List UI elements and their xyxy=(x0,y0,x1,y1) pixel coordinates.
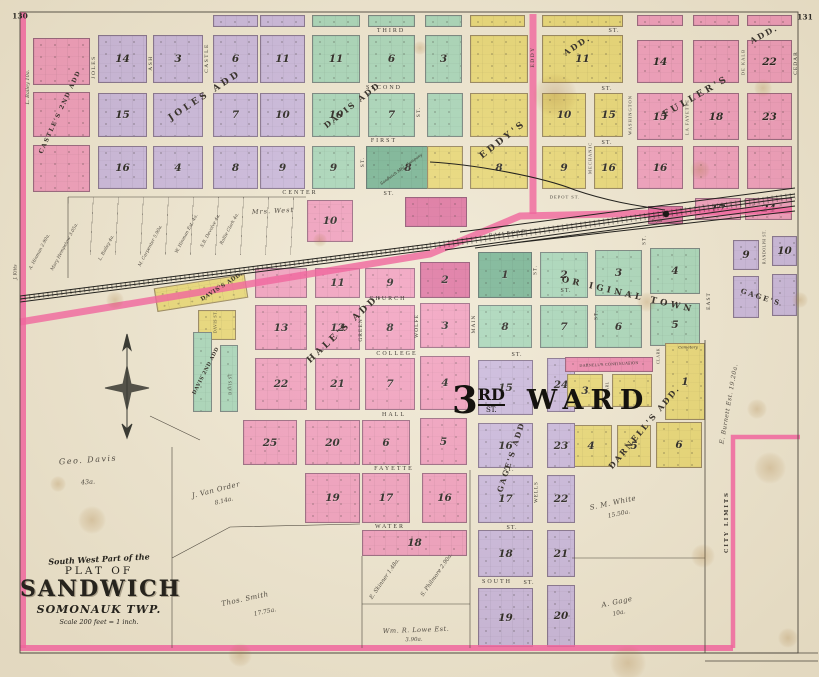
city-block: 6 xyxy=(362,420,410,465)
block-number: 11 xyxy=(261,36,304,82)
block-number: 19 xyxy=(479,589,532,646)
block-number: 19 xyxy=(306,474,359,522)
city-block: 10 xyxy=(772,236,797,266)
paper-stain xyxy=(106,291,124,309)
township-name: SOMONAUK TWP. xyxy=(20,603,178,616)
city-block: 10 xyxy=(307,200,353,242)
ward-number: 3 xyxy=(452,381,478,419)
block-number: 17 xyxy=(363,474,409,522)
city-block: 11 xyxy=(312,35,360,83)
block-number: 10 xyxy=(261,94,304,136)
city-block: 16 xyxy=(637,146,683,189)
block-number: 25 xyxy=(244,421,296,464)
block-number: 3 xyxy=(154,36,202,82)
city-block: 6 xyxy=(368,35,415,83)
block-number: 16 xyxy=(423,474,466,522)
city-block: 11 xyxy=(260,35,305,83)
block-number: 24 xyxy=(746,199,791,219)
city-block xyxy=(693,146,739,189)
block-number: 6 xyxy=(596,306,641,347)
block-number: 8 xyxy=(366,306,414,349)
property-owner-label: 3.90a. xyxy=(405,637,422,644)
city-block: 14 xyxy=(637,40,683,83)
paper-stain xyxy=(754,452,786,484)
city-block: 7 xyxy=(213,93,258,137)
street-label: JOLES xyxy=(91,55,97,78)
property-owner-label: 43a. xyxy=(81,478,96,487)
paper-stain xyxy=(778,628,798,648)
block-number: 23 xyxy=(548,424,574,467)
street-label: CASTLE xyxy=(204,43,210,73)
block-number: 20 xyxy=(548,586,574,646)
city-block xyxy=(427,93,463,137)
plat-map-canvas: 1436111163111422157101071015151823164899… xyxy=(0,0,819,677)
property-owner-label: J. Kitts xyxy=(14,264,19,279)
street-label: ST. xyxy=(601,86,612,92)
city-block: 23 xyxy=(547,423,575,468)
annotation-label: Cemetery xyxy=(678,345,698,350)
city-block xyxy=(405,197,467,227)
city-block: 16 xyxy=(422,473,467,523)
block-number: 7 xyxy=(369,94,414,136)
city-block: 22 xyxy=(547,475,575,523)
city-block xyxy=(213,15,258,27)
block-number: 6 xyxy=(363,421,409,464)
street-label: FAYETTE xyxy=(374,466,414,472)
city-block: 9 xyxy=(365,268,415,298)
street-label: ST. xyxy=(523,580,534,586)
ward-label: 3 RD ST. WARD xyxy=(452,381,667,427)
city-block: 15 xyxy=(637,93,683,140)
block-number: 6 xyxy=(369,36,414,82)
property-owner-label: J. Van Order xyxy=(191,480,241,500)
block-number: 9 xyxy=(366,269,414,297)
street-label: MECHANIC xyxy=(588,142,593,174)
city-block: 21 xyxy=(315,358,360,410)
city-block: 1 xyxy=(478,252,532,298)
block-number: 16 xyxy=(99,147,146,188)
city-block: 10 xyxy=(542,93,586,137)
street-label: WASHINGTON xyxy=(628,95,633,135)
street-label: ST. xyxy=(506,525,517,531)
street-label: CLARK xyxy=(656,348,661,364)
block-number: 15 xyxy=(638,94,682,139)
ward-word: WARD xyxy=(527,381,650,421)
city-block: 7 xyxy=(368,93,415,137)
map-title: SANDWICH xyxy=(20,577,178,601)
street-label: WELLS xyxy=(535,481,540,503)
property-owner-label: 8.14a. xyxy=(214,495,234,506)
city-block: 21 xyxy=(547,530,575,577)
street-label: ST. xyxy=(643,235,648,245)
block-number: 9 xyxy=(261,147,304,188)
city-block: 16 xyxy=(594,146,623,189)
block-number: 4 xyxy=(154,147,202,188)
block-number: 11 xyxy=(313,36,359,82)
street-label: WOLFE xyxy=(414,314,420,338)
city-block: 23 xyxy=(747,93,792,140)
city-block: 18 xyxy=(478,530,533,577)
street-label: ST. xyxy=(560,288,571,294)
property-owner-label: A. Gage xyxy=(601,595,633,609)
block-number: 8 xyxy=(479,306,531,347)
city-block: 9 xyxy=(733,240,759,270)
property-owner-label: Geo. Davis xyxy=(59,453,118,466)
city-block: 11 xyxy=(315,268,360,298)
city-block xyxy=(747,146,792,189)
street-label: ST. xyxy=(534,265,539,275)
city-block: 4 xyxy=(570,425,612,467)
block-number: 7 xyxy=(366,359,414,409)
paper-stain xyxy=(228,643,252,667)
city-block: 22 xyxy=(255,358,307,410)
block-number: 2 xyxy=(421,263,469,297)
city-block: 1 xyxy=(665,343,705,420)
city-block: 9 xyxy=(260,146,305,189)
city-block: 8 xyxy=(478,305,532,348)
block-number: 1 xyxy=(479,253,531,297)
city-block: 6 xyxy=(656,422,702,468)
city-block xyxy=(470,35,528,83)
block-number: 3 xyxy=(426,36,461,82)
city-block: 7 xyxy=(540,305,588,348)
city-block: 3 xyxy=(420,303,470,348)
city-block: 19 xyxy=(478,588,533,647)
city-block xyxy=(637,15,683,26)
ward-suffix: RD xyxy=(478,386,505,406)
city-block: 6 xyxy=(595,305,642,348)
city-block: 17 xyxy=(362,473,410,523)
paper-stain xyxy=(747,399,767,419)
city-block xyxy=(33,38,90,85)
street-label: MAIN xyxy=(471,315,477,334)
street-label: ST. xyxy=(383,191,394,197)
city-block: 10 xyxy=(260,93,305,137)
city-block: 20 xyxy=(547,585,575,647)
property-owner-label: Wm. R. Lowe Est. xyxy=(383,625,450,635)
city-block: 9 xyxy=(312,146,355,189)
block-number: 16 xyxy=(595,147,622,188)
city-block xyxy=(542,15,623,27)
block-number: 18 xyxy=(363,531,466,555)
block-number: 20 xyxy=(306,421,359,464)
block-number: 4 xyxy=(571,426,611,466)
street-label: DE KALB xyxy=(741,49,746,75)
block-number: 15 xyxy=(99,94,146,136)
city-block xyxy=(260,15,305,27)
block-number: 21 xyxy=(316,359,359,409)
block-number: 9 xyxy=(313,147,354,188)
city-block xyxy=(693,40,739,83)
block-number: 3 xyxy=(421,304,469,347)
paper-stain xyxy=(691,544,715,568)
city-block: 8 xyxy=(365,305,415,350)
city-block: 15 xyxy=(98,93,147,137)
block-number: 8 xyxy=(214,147,257,188)
property-owner-label: L. Bailey 10a. xyxy=(25,70,31,105)
street-label: DAVIS ST. xyxy=(213,311,218,334)
property-owner-label: Thos. Smith xyxy=(221,590,270,608)
paper-stain xyxy=(610,645,646,677)
street-label: THIRD xyxy=(377,28,405,34)
block-number: 18 xyxy=(694,94,738,139)
city-block: 3 xyxy=(425,35,462,83)
city-block xyxy=(427,146,463,189)
city-block: 2 xyxy=(420,262,470,298)
city-block: 22 xyxy=(747,40,792,83)
street-label: DAVIS ST xyxy=(228,373,233,394)
street-label: COLLEGE xyxy=(376,351,417,357)
block-number: 7 xyxy=(214,94,257,136)
property-owner-label: E. Burnett Est. 19.20a. xyxy=(718,363,739,444)
block-number: 9 xyxy=(734,241,758,269)
street-label: ST. xyxy=(511,352,522,358)
block-number: 10 xyxy=(773,237,796,265)
block-number: 17 xyxy=(696,199,740,219)
street-label: EAST xyxy=(706,292,712,310)
block-number: 11 xyxy=(316,269,359,297)
street-label: CENTER xyxy=(282,190,317,196)
city-block: 25 xyxy=(243,420,297,465)
city-block: 4 xyxy=(650,248,700,294)
city-block: 18 xyxy=(362,530,467,556)
city-block: 3 xyxy=(153,35,203,83)
city-block: 15 xyxy=(594,93,623,137)
block-number: 21 xyxy=(548,531,574,576)
block-number: 14 xyxy=(638,41,682,82)
city-block xyxy=(425,15,462,27)
annotation-label: Depot xyxy=(652,219,663,223)
map-scale: Scale 200 feet = 1 inch. xyxy=(20,618,178,626)
block-number: 16 xyxy=(638,147,682,188)
block-number: 22 xyxy=(748,41,791,82)
paper-stain xyxy=(78,506,106,534)
city-block: 16 xyxy=(98,146,147,189)
block-number: 1 xyxy=(666,344,704,419)
street-label: HALL xyxy=(382,412,406,418)
street-label: WATER xyxy=(375,524,405,530)
paper-stain xyxy=(50,476,66,492)
street-label: ST. xyxy=(595,310,600,320)
street-label: ST. xyxy=(360,157,366,167)
ward-st: ST. xyxy=(478,406,505,414)
city-block: 7 xyxy=(365,358,415,410)
block-number: 10 xyxy=(543,94,585,136)
block-number: 4 xyxy=(651,249,699,293)
block-number: 13 xyxy=(256,306,306,349)
map-title-block: South West Part of the PLAT OF SANDWICH … xyxy=(20,554,178,626)
property-owner-label: S. Philmore 2.90a. xyxy=(420,552,454,597)
block-number: 7 xyxy=(541,306,587,347)
page-number-left: 130 xyxy=(12,12,28,21)
city-block xyxy=(470,15,525,27)
street-label: EDDY xyxy=(530,46,536,67)
street-label: FIRST xyxy=(371,138,397,144)
block-number: 15 xyxy=(595,94,622,136)
block-number: 22 xyxy=(256,359,306,409)
city-block xyxy=(693,15,739,26)
city-block xyxy=(312,15,360,27)
street-label: RAILROAD xyxy=(489,229,527,239)
property-owner-label: E. Skinner 1.48a. xyxy=(369,557,402,600)
city-block: 19 xyxy=(305,473,360,523)
addition-name-label: CITY LIMITS xyxy=(724,491,730,553)
property-owner-label: A. Hinman 2.90a. xyxy=(28,233,51,270)
city-block: 8 xyxy=(213,146,258,189)
city-block xyxy=(772,274,797,316)
block-number: 6 xyxy=(657,423,701,467)
city-block xyxy=(368,15,415,27)
page-number-right: 131 xyxy=(797,13,813,22)
street-label: SOUTH xyxy=(482,579,512,585)
property-owner-label: 17.75a. xyxy=(253,606,277,618)
block-number: 9 xyxy=(543,147,585,188)
block-number: 22 xyxy=(548,476,574,522)
block-number: 18 xyxy=(479,531,532,576)
city-block: 13 xyxy=(255,305,307,350)
city-block xyxy=(255,268,307,298)
city-block: 20 xyxy=(305,420,360,465)
block-number: 14 xyxy=(99,36,146,82)
compass-rose-icon xyxy=(105,334,149,438)
street-label: ST. xyxy=(416,107,422,117)
street-label: CEDAR xyxy=(793,51,799,75)
city-block: 4 xyxy=(153,146,203,189)
block-number: 23 xyxy=(748,94,791,139)
property-owner-label: 15.50a. xyxy=(607,508,631,520)
city-block: 17 xyxy=(695,198,741,220)
street-label: ASH xyxy=(148,55,154,71)
block-number: 10 xyxy=(308,201,352,241)
street-label: DEPOT ST. xyxy=(550,195,581,200)
street-label: ST. xyxy=(608,28,619,34)
city-block: 9 xyxy=(542,146,586,189)
city-block: 24 xyxy=(745,198,792,220)
street-label: ST. xyxy=(601,140,612,146)
city-block: 14 xyxy=(98,35,147,83)
street-label: RANDOLPH ST. xyxy=(762,230,767,264)
property-owner-label: 10a. xyxy=(612,608,626,618)
